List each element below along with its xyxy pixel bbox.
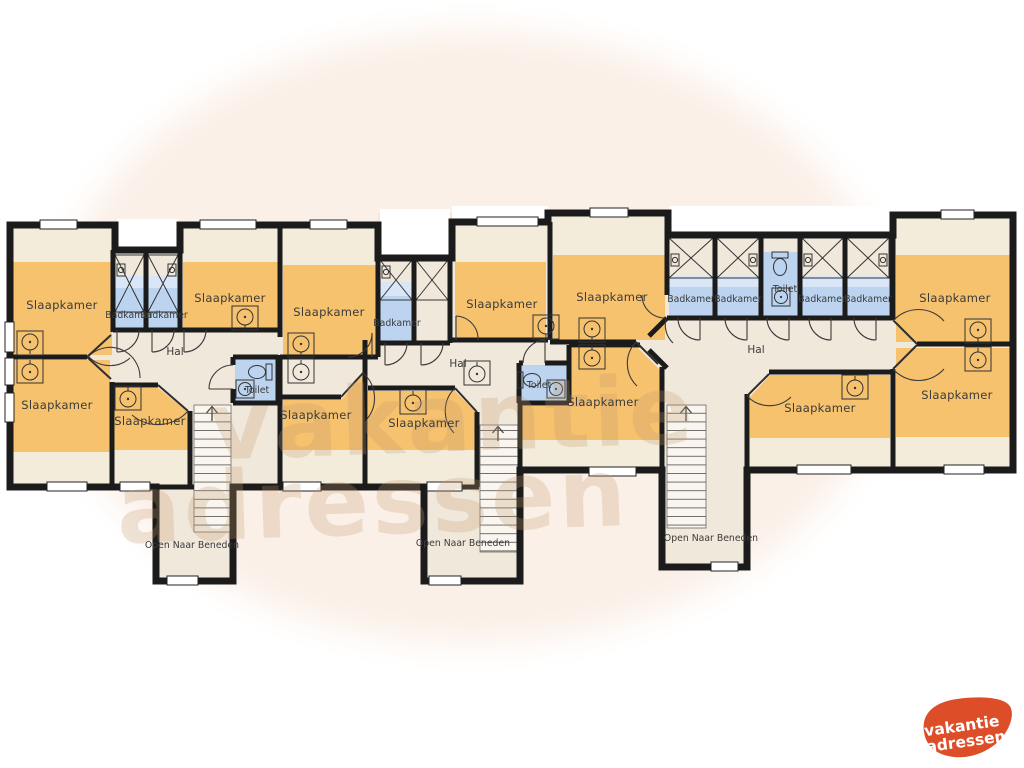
bedroom-9-label: Slaapkamer [388, 416, 459, 430]
void-3-label: Open Naar Beneden [664, 533, 758, 544]
bedroom-13-label: Slaapkamer [921, 388, 992, 402]
toilet-1-label: Toilet [244, 385, 270, 396]
toilet-2-label: Toilet [526, 380, 552, 391]
hall-1-label: Hal [166, 346, 183, 358]
bathroom-7-label: Badkamer [844, 294, 892, 305]
void-2-label: Open Naar Beneden [416, 538, 510, 549]
bathroom-2-label: Badkamer [140, 310, 188, 321]
bedroom-6-label: Slaapkamer [280, 408, 351, 422]
floor-plan: vakantie adressen Slaapkamer Slaapkamer … [0, 0, 1024, 768]
bedroom-1-label: Slaapkamer [26, 298, 97, 312]
bathroom-6-label: Badkamer [798, 294, 846, 305]
hall-2-label: Hal [449, 358, 466, 370]
hall-3-label: Hal [747, 344, 764, 356]
bathroom-3-label: Badkamer [373, 318, 421, 329]
bedroom-12-label: Slaapkamer [919, 291, 990, 305]
floorplan-page: vakantie adressen Slaapkamer Slaapkamer … [0, 0, 1024, 768]
bathroom-4-label: Badkamer [667, 294, 715, 305]
toilet-3-label: Toilet [772, 284, 798, 295]
bedroom-8-label: Slaapkamer [576, 290, 647, 304]
bathroom-5-label: Badkamer [714, 294, 762, 305]
bedroom-7-label: Slaapkamer [466, 297, 537, 311]
bedroom-3-label: Slaapkamer [194, 291, 265, 305]
void-1-label: Open Naar Beneden [145, 540, 239, 551]
bedroom-4-label: Slaapkamer [293, 305, 364, 319]
bedroom-5-label: Slaapkamer [114, 414, 185, 428]
bedroom-10-label: Slaapkamer [567, 395, 638, 409]
bedroom-2-label: Slaapkamer [21, 398, 92, 412]
bedroom-11-label: Slaapkamer [784, 401, 855, 415]
